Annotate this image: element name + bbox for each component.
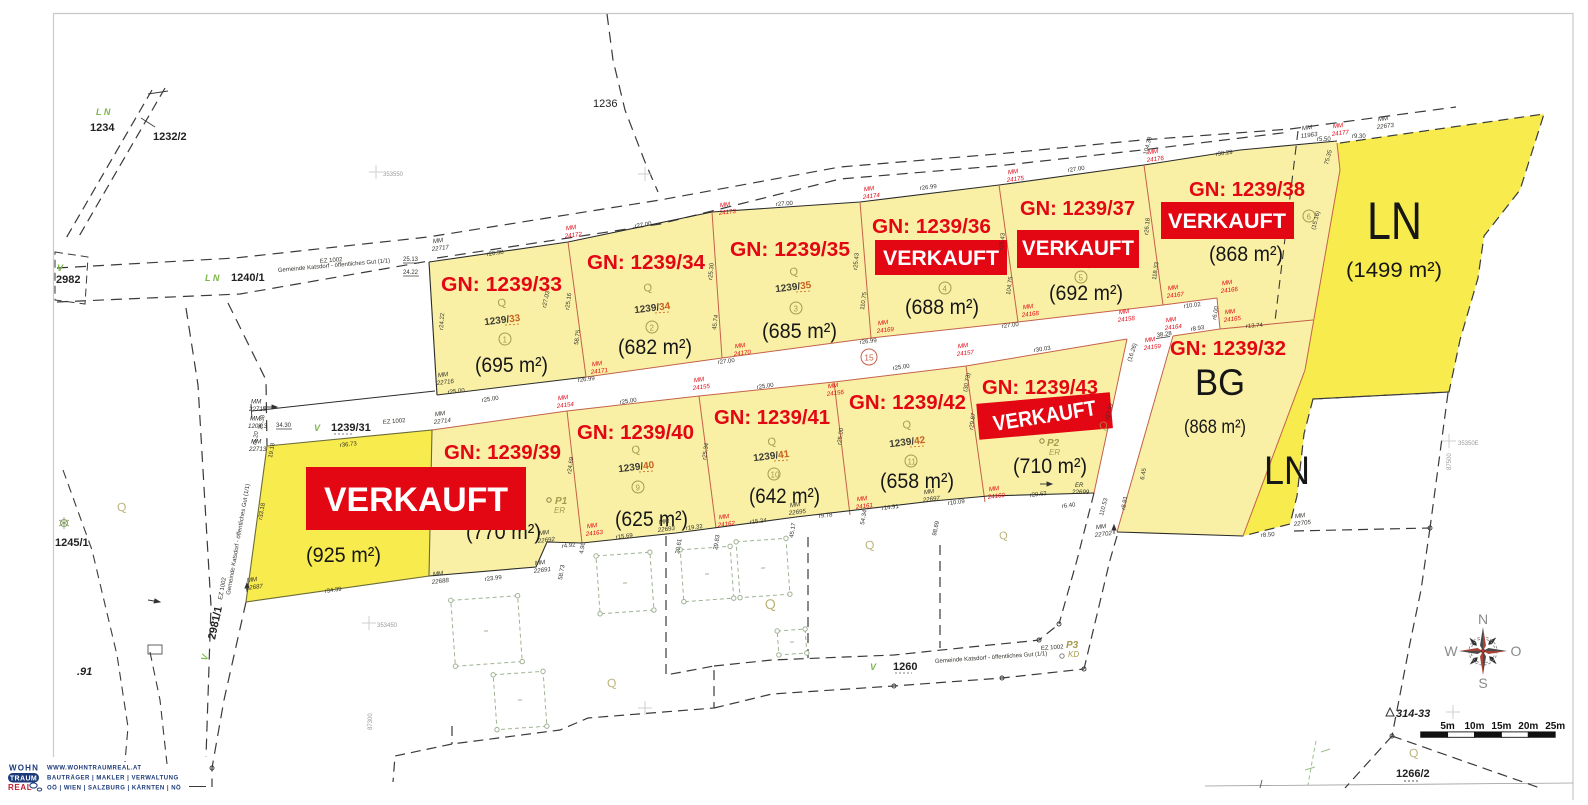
svg-text:24157: 24157 — [955, 349, 974, 358]
svg-text:1234: 1234 — [90, 122, 115, 134]
svg-text:V: V — [57, 263, 64, 273]
svg-text:24154: 24154 — [555, 401, 574, 410]
svg-text:1: 1 — [503, 336, 508, 345]
svg-text:GN: 1239/38: GN: 1239/38 — [1189, 179, 1305, 201]
svg-text:r27.00: r27.00 — [1002, 322, 1020, 330]
svg-text:r25.00: r25.00 — [481, 396, 499, 404]
svg-text:VERKAUFT: VERKAUFT — [324, 481, 508, 519]
svg-text:22717: 22717 — [430, 244, 449, 253]
svg-text:22697: 22697 — [921, 495, 940, 504]
svg-text:LN: LN — [1367, 192, 1422, 251]
svg-text:BG: BG — [1195, 362, 1245, 403]
svg-text:GN: 1239/41: GN: 1239/41 — [714, 407, 830, 429]
svg-text:V: V — [314, 423, 321, 433]
svg-text:r20.62: r20.62 — [1030, 491, 1048, 499]
svg-text:WOHN: WOHN — [9, 764, 39, 773]
svg-text:r6.40: r6.40 — [1062, 502, 1077, 510]
svg-text:L N: L N — [205, 273, 220, 283]
svg-text:(625 m²): (625 m²) — [615, 508, 688, 531]
svg-text:2982: 2982 — [56, 274, 80, 286]
svg-text:24155: 24155 — [691, 383, 710, 392]
svg-text:24.22: 24.22 — [403, 270, 419, 276]
svg-text:24170: 24170 — [732, 349, 751, 358]
svg-text:r15.24: r15.24 — [750, 518, 768, 526]
svg-text:GN: 1239/37: GN: 1239/37 — [1020, 198, 1135, 220]
svg-text:1266/2: 1266/2 — [1396, 768, 1430, 780]
svg-text:1236: 1236 — [593, 98, 617, 110]
svg-text:Q: Q — [763, 595, 777, 613]
svg-text:22713: 22713 — [248, 446, 267, 453]
svg-text:r34.39: r34.39 — [324, 587, 342, 595]
svg-text:5m: 5m — [1440, 721, 1455, 732]
svg-text:35350E: 35350E — [1458, 441, 1479, 447]
svg-text:GN: 1239/39: GN: 1239/39 — [444, 442, 561, 464]
svg-text:24158: 24158 — [1116, 315, 1135, 324]
svg-text:ER: ER — [1049, 448, 1060, 457]
svg-text:r9.30: r9.30 — [1352, 134, 1366, 140]
svg-text:20m: 20m — [1518, 721, 1538, 732]
svg-text:87300: 87300 — [368, 713, 374, 730]
svg-text:3: 3 — [794, 305, 799, 314]
svg-text:GN: 1239/32: GN: 1239/32 — [1170, 338, 1286, 360]
svg-text:9: 9 — [636, 484, 641, 493]
svg-text:r27.00: r27.00 — [718, 358, 736, 366]
svg-text:r27.00: r27.00 — [1067, 166, 1085, 174]
svg-text:GN: 1239/35: GN: 1239/35 — [730, 239, 850, 261]
svg-text:VERKAUFT: VERKAUFT — [1168, 210, 1286, 233]
svg-text:r23.99: r23.99 — [485, 575, 503, 583]
svg-text:4: 4 — [943, 285, 948, 294]
svg-text:r5.50: r5.50 — [1317, 137, 1331, 143]
svg-text:S: S — [1478, 675, 1487, 691]
svg-text:4.90: 4.90 — [579, 541, 587, 554]
svg-text:(688 m²): (688 m²) — [905, 296, 979, 319]
svg-text:Q: Q — [1408, 745, 1420, 761]
svg-text:22705: 22705 — [1292, 519, 1311, 528]
svg-text:r25.00: r25.00 — [448, 388, 466, 396]
svg-text:(692 m²): (692 m²) — [1049, 282, 1123, 305]
svg-text:Gemeinde Katsdorf - öffentlich: Gemeinde Katsdorf - öffentliches Gut (1/… — [935, 651, 1048, 665]
svg-text:EZ 1002: EZ 1002 — [383, 418, 407, 426]
svg-text:r25.00: r25.00 — [892, 364, 910, 372]
svg-text:110.53: 110.53 — [1099, 497, 1110, 516]
svg-text:VERKAUFT: VERKAUFT — [1022, 237, 1134, 260]
svg-text:BAUTRÄGER | MAKLER | VERWALTUN: BAUTRÄGER | MAKLER | VERWALTUNG — [47, 775, 179, 782]
svg-text:24162: 24162 — [716, 520, 735, 529]
svg-text:34.30: 34.30 — [276, 423, 292, 429]
svg-text:KD: KD — [1068, 650, 1079, 659]
svg-text:(868 m²): (868 m²) — [1184, 417, 1246, 438]
svg-text:L N: L N — [96, 107, 111, 117]
svg-text:24160: 24160 — [986, 492, 1005, 501]
svg-text:REAL: REAL — [8, 783, 32, 792]
svg-text:22699: 22699 — [1071, 489, 1090, 496]
svg-text:24177: 24177 — [1330, 129, 1349, 138]
svg-text:GN: 1239/42: GN: 1239/42 — [849, 392, 966, 414]
svg-text:15m: 15m — [1491, 721, 1511, 732]
svg-text:Q: Q — [998, 529, 1009, 543]
svg-text:r10.09: r10.09 — [948, 499, 966, 507]
svg-text:r19.32: r19.32 — [686, 524, 704, 532]
svg-text:45.17: 45.17 — [789, 522, 798, 538]
svg-text:87500: 87500 — [1447, 453, 1453, 470]
svg-text:O: O — [1511, 643, 1522, 659]
svg-text:GN: 1239/34: GN: 1239/34 — [587, 252, 706, 274]
svg-text:(868 m²): (868 m²) — [1209, 243, 1283, 266]
svg-text:GN: 1239/33: GN: 1239/33 — [441, 274, 562, 296]
svg-text:353450: 353450 — [377, 623, 398, 629]
svg-text:TRAUM: TRAUM — [10, 775, 37, 782]
svg-text:10: 10 — [771, 471, 780, 480]
svg-text:N: N — [1478, 611, 1488, 627]
svg-text:r14.91: r14.91 — [882, 504, 900, 512]
svg-text:r8.50: r8.50 — [1261, 532, 1276, 539]
svg-text:22691: 22691 — [532, 566, 551, 575]
svg-text:10m: 10m — [1464, 721, 1484, 732]
svg-text:Q: Q — [116, 499, 128, 515]
svg-text:58.73: 58.73 — [558, 564, 567, 580]
svg-text:11963: 11963 — [1300, 131, 1318, 140]
svg-text:(685 m²): (685 m²) — [762, 320, 837, 343]
svg-text:GN: 1239/36: GN: 1239/36 — [872, 216, 991, 238]
svg-text:r15.69: r15.69 — [616, 533, 634, 541]
svg-text:r10.02: r10.02 — [1184, 302, 1202, 310]
svg-text:(16.26): (16.26) — [1127, 343, 1139, 363]
svg-text:LN: LN — [1264, 449, 1310, 493]
svg-text:OÖ | WIEN | SALZBURG | KÄRNTEN: OÖ | WIEN | SALZBURG | KÄRNTEN | NÖ — [47, 785, 181, 792]
svg-text:24159: 24159 — [1142, 343, 1161, 352]
svg-text:(695 m²): (695 m²) — [475, 354, 548, 377]
svg-text:(682 m²): (682 m²) — [618, 336, 692, 359]
svg-text:VERKAUFT: VERKAUFT — [883, 247, 999, 270]
svg-text:WWW.WOHNTRAUMREAL.AT: WWW.WOHNTRAUMREAL.AT — [47, 766, 142, 772]
svg-text:r9.78: r9.78 — [819, 512, 834, 520]
svg-text:1260: 1260 — [893, 661, 917, 673]
svg-text:22673: 22673 — [1375, 122, 1394, 131]
svg-text:ER: ER — [554, 506, 565, 515]
svg-text:Q: Q — [864, 537, 876, 553]
svg-text:(658 m²): (658 m²) — [880, 470, 954, 493]
svg-text:20.61: 20.61 — [675, 538, 684, 554]
svg-text:Q: Q — [606, 675, 618, 691]
svg-text:r26.99: r26.99 — [920, 184, 938, 192]
svg-text:r26.99: r26.99 — [860, 338, 878, 346]
svg-text:22702: 22702 — [1093, 530, 1112, 539]
svg-text:(642 m²): (642 m²) — [749, 485, 820, 508]
svg-text:29.83: 29.83 — [713, 534, 722, 550]
svg-text:314-33: 314-33 — [1396, 708, 1430, 720]
svg-text:r27.00: r27.00 — [776, 201, 794, 208]
svg-text:98.69: 98.69 — [932, 520, 941, 537]
svg-text:6: 6 — [1307, 213, 1312, 222]
svg-text:V: V — [199, 652, 210, 661]
svg-text:r4.92: r4.92 — [562, 542, 577, 550]
svg-text:(1499 m²): (1499 m²) — [1346, 259, 1442, 282]
svg-text:2: 2 — [650, 324, 655, 333]
svg-text:W: W — [1444, 643, 1458, 659]
svg-text:r24.22: r24.22 — [439, 312, 446, 330]
svg-text:r13.74: r13.74 — [1246, 323, 1264, 330]
svg-text:22692: 22692 — [536, 536, 555, 545]
svg-text:24172: 24172 — [563, 231, 582, 240]
svg-text:5: 5 — [1079, 274, 1084, 283]
svg-text:15: 15 — [864, 353, 874, 363]
svg-text:.91: .91 — [77, 666, 92, 678]
svg-text:11: 11 — [908, 458, 917, 467]
svg-text:22688: 22688 — [430, 577, 449, 586]
svg-text:54.34: 54.34 — [860, 509, 869, 525]
svg-text:22714: 22714 — [432, 417, 451, 426]
svg-text:V: V — [870, 662, 877, 672]
svg-text:25m: 25m — [1545, 721, 1565, 732]
svg-text:25.13: 25.13 — [403, 257, 419, 263]
svg-text:GN: 1239/40: GN: 1239/40 — [577, 422, 694, 444]
svg-text:353550: 353550 — [383, 172, 404, 178]
svg-text:1232/2: 1232/2 — [153, 131, 187, 143]
svg-text:1240/1: 1240/1 — [231, 272, 265, 284]
svg-text:MM: MM — [251, 399, 262, 406]
svg-text:(925 m²): (925 m²) — [306, 544, 381, 567]
svg-text:(710 m²): (710 m²) — [1013, 455, 1087, 478]
svg-text:2981/1: 2981/1 — [206, 605, 225, 640]
svg-text:1245/1: 1245/1 — [55, 537, 89, 549]
svg-text:r26.99: r26.99 — [578, 376, 596, 384]
svg-text:1239/31: 1239/31 — [331, 422, 371, 434]
